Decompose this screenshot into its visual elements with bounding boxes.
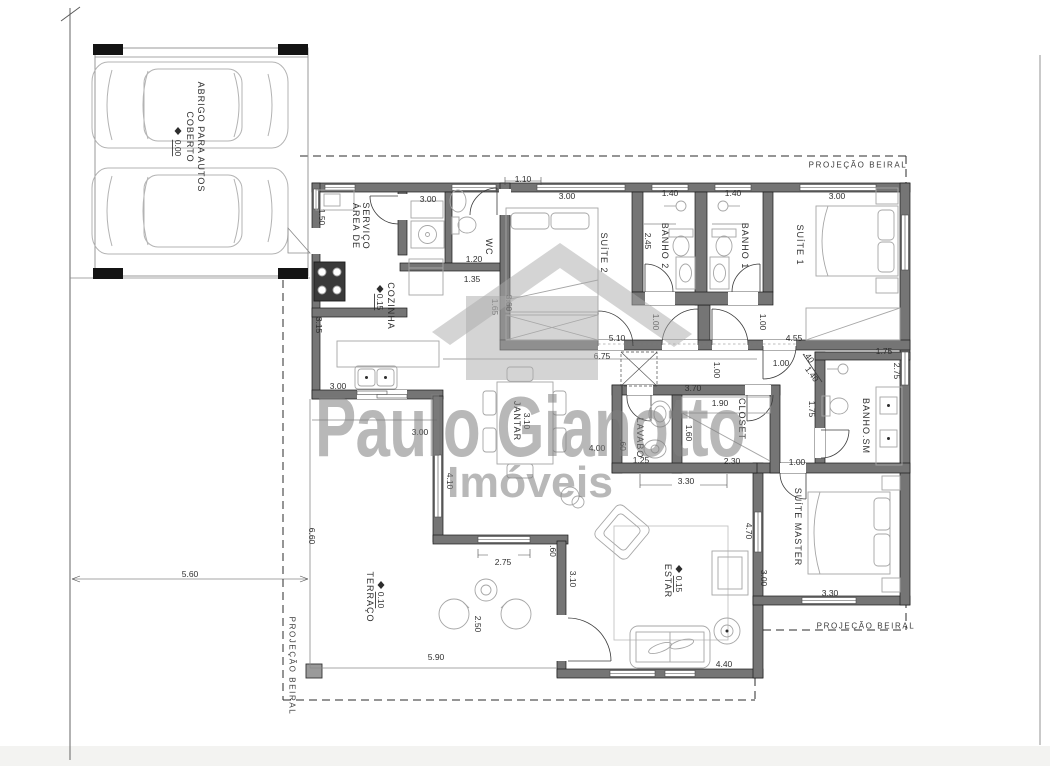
- dim-label: 3.00: [420, 194, 437, 204]
- room-label-cozinha-level: 0.15: [375, 294, 385, 311]
- dim-label: 3.00: [559, 191, 576, 201]
- dim-label: 3.30: [678, 476, 695, 486]
- room-label-abrigo-level: 0.00: [173, 140, 183, 157]
- note-label: PROJEÇÃO BEIRAL: [809, 161, 908, 170]
- room-label-terraco-level: 0.10: [376, 592, 386, 609]
- note-label: PROJEÇÃO BEIRAL: [817, 622, 916, 631]
- dim-label: 1.00: [758, 314, 768, 331]
- dim-label: 3.15: [314, 317, 324, 334]
- floor-plan-page: ABRIGO PARA AUTOSCOBERTO0.00ÁREA DESERVI…: [0, 0, 1050, 766]
- dim-label: 1.75: [807, 401, 817, 418]
- room-label-cozinha: COZINHA: [386, 282, 396, 330]
- dim-label: 1.20: [466, 254, 483, 264]
- room-label-suite2: SUÍTE 2: [599, 232, 609, 273]
- watermark-line2: Imóveis: [447, 458, 613, 507]
- dim-label: 4.70: [744, 523, 754, 540]
- room-label-abrigo-line2: COBERTO: [185, 111, 195, 162]
- dim-label: 2.50: [473, 616, 483, 633]
- room-label-banho1: BANHO 1: [740, 223, 750, 270]
- stove-icon: [314, 262, 345, 301]
- scan-bottom-band: [0, 746, 1050, 766]
- dim-label: 1.10: [515, 174, 532, 184]
- dim-label: 5.90: [428, 652, 445, 662]
- dim-label: 4.40: [716, 659, 733, 669]
- room-label-wc: WC: [484, 239, 494, 256]
- dim-label: 5.60: [182, 569, 199, 579]
- dim-label: 6.60: [307, 528, 317, 545]
- watermark-house-body: [466, 296, 598, 380]
- dim-label: 3.30: [822, 588, 839, 598]
- dim-label: 2.75: [495, 557, 512, 567]
- note-label: PROJEÇÃO BEIRAL: [288, 617, 297, 716]
- dim-label: 5.10: [609, 333, 626, 343]
- room-label-suite1: SUÍTE 1: [795, 224, 805, 265]
- dim-label: .60: [548, 545, 558, 557]
- dim-label: 1.35: [464, 274, 481, 284]
- floor-plan-drawing: ABRIGO PARA AUTOSCOBERTO0.00ÁREA DESERVI…: [0, 0, 1050, 766]
- room-label-suite-master: SUÍTE MASTER: [793, 488, 803, 567]
- room-label-estar: ESTAR: [663, 564, 673, 598]
- dim-label: 2.75: [892, 363, 902, 380]
- room-label-area-servico-2: SERVIÇO: [361, 202, 371, 249]
- dim-label: 3.00: [759, 570, 769, 587]
- dim-label: 1.75: [876, 346, 893, 356]
- dim-label: 2.45: [643, 233, 653, 250]
- dim-label: 3.00: [829, 191, 846, 201]
- dim-label: 3.10: [568, 571, 578, 588]
- dim-label: 1.00: [773, 358, 790, 368]
- room-label-terraco: TERRAÇO: [365, 571, 375, 622]
- room-label-abrigo-line1: ABRIGO PARA AUTOS: [196, 82, 206, 193]
- room-label-area-servico-1: ÁREA DE: [351, 203, 361, 249]
- dim-label: 1.40: [725, 188, 742, 198]
- dim-label: 1.00: [789, 457, 806, 467]
- dim-label: 1.00: [712, 362, 722, 379]
- dim-label: 1.40: [662, 188, 679, 198]
- dim-label: 1.50: [317, 209, 327, 226]
- room-label-estar-level: 0.15: [674, 576, 684, 593]
- room-label-banho-sm: BANHO.SM: [861, 398, 871, 454]
- dim-label: 4.55: [786, 333, 803, 343]
- room-label-banho2: BANHO 2: [660, 223, 670, 270]
